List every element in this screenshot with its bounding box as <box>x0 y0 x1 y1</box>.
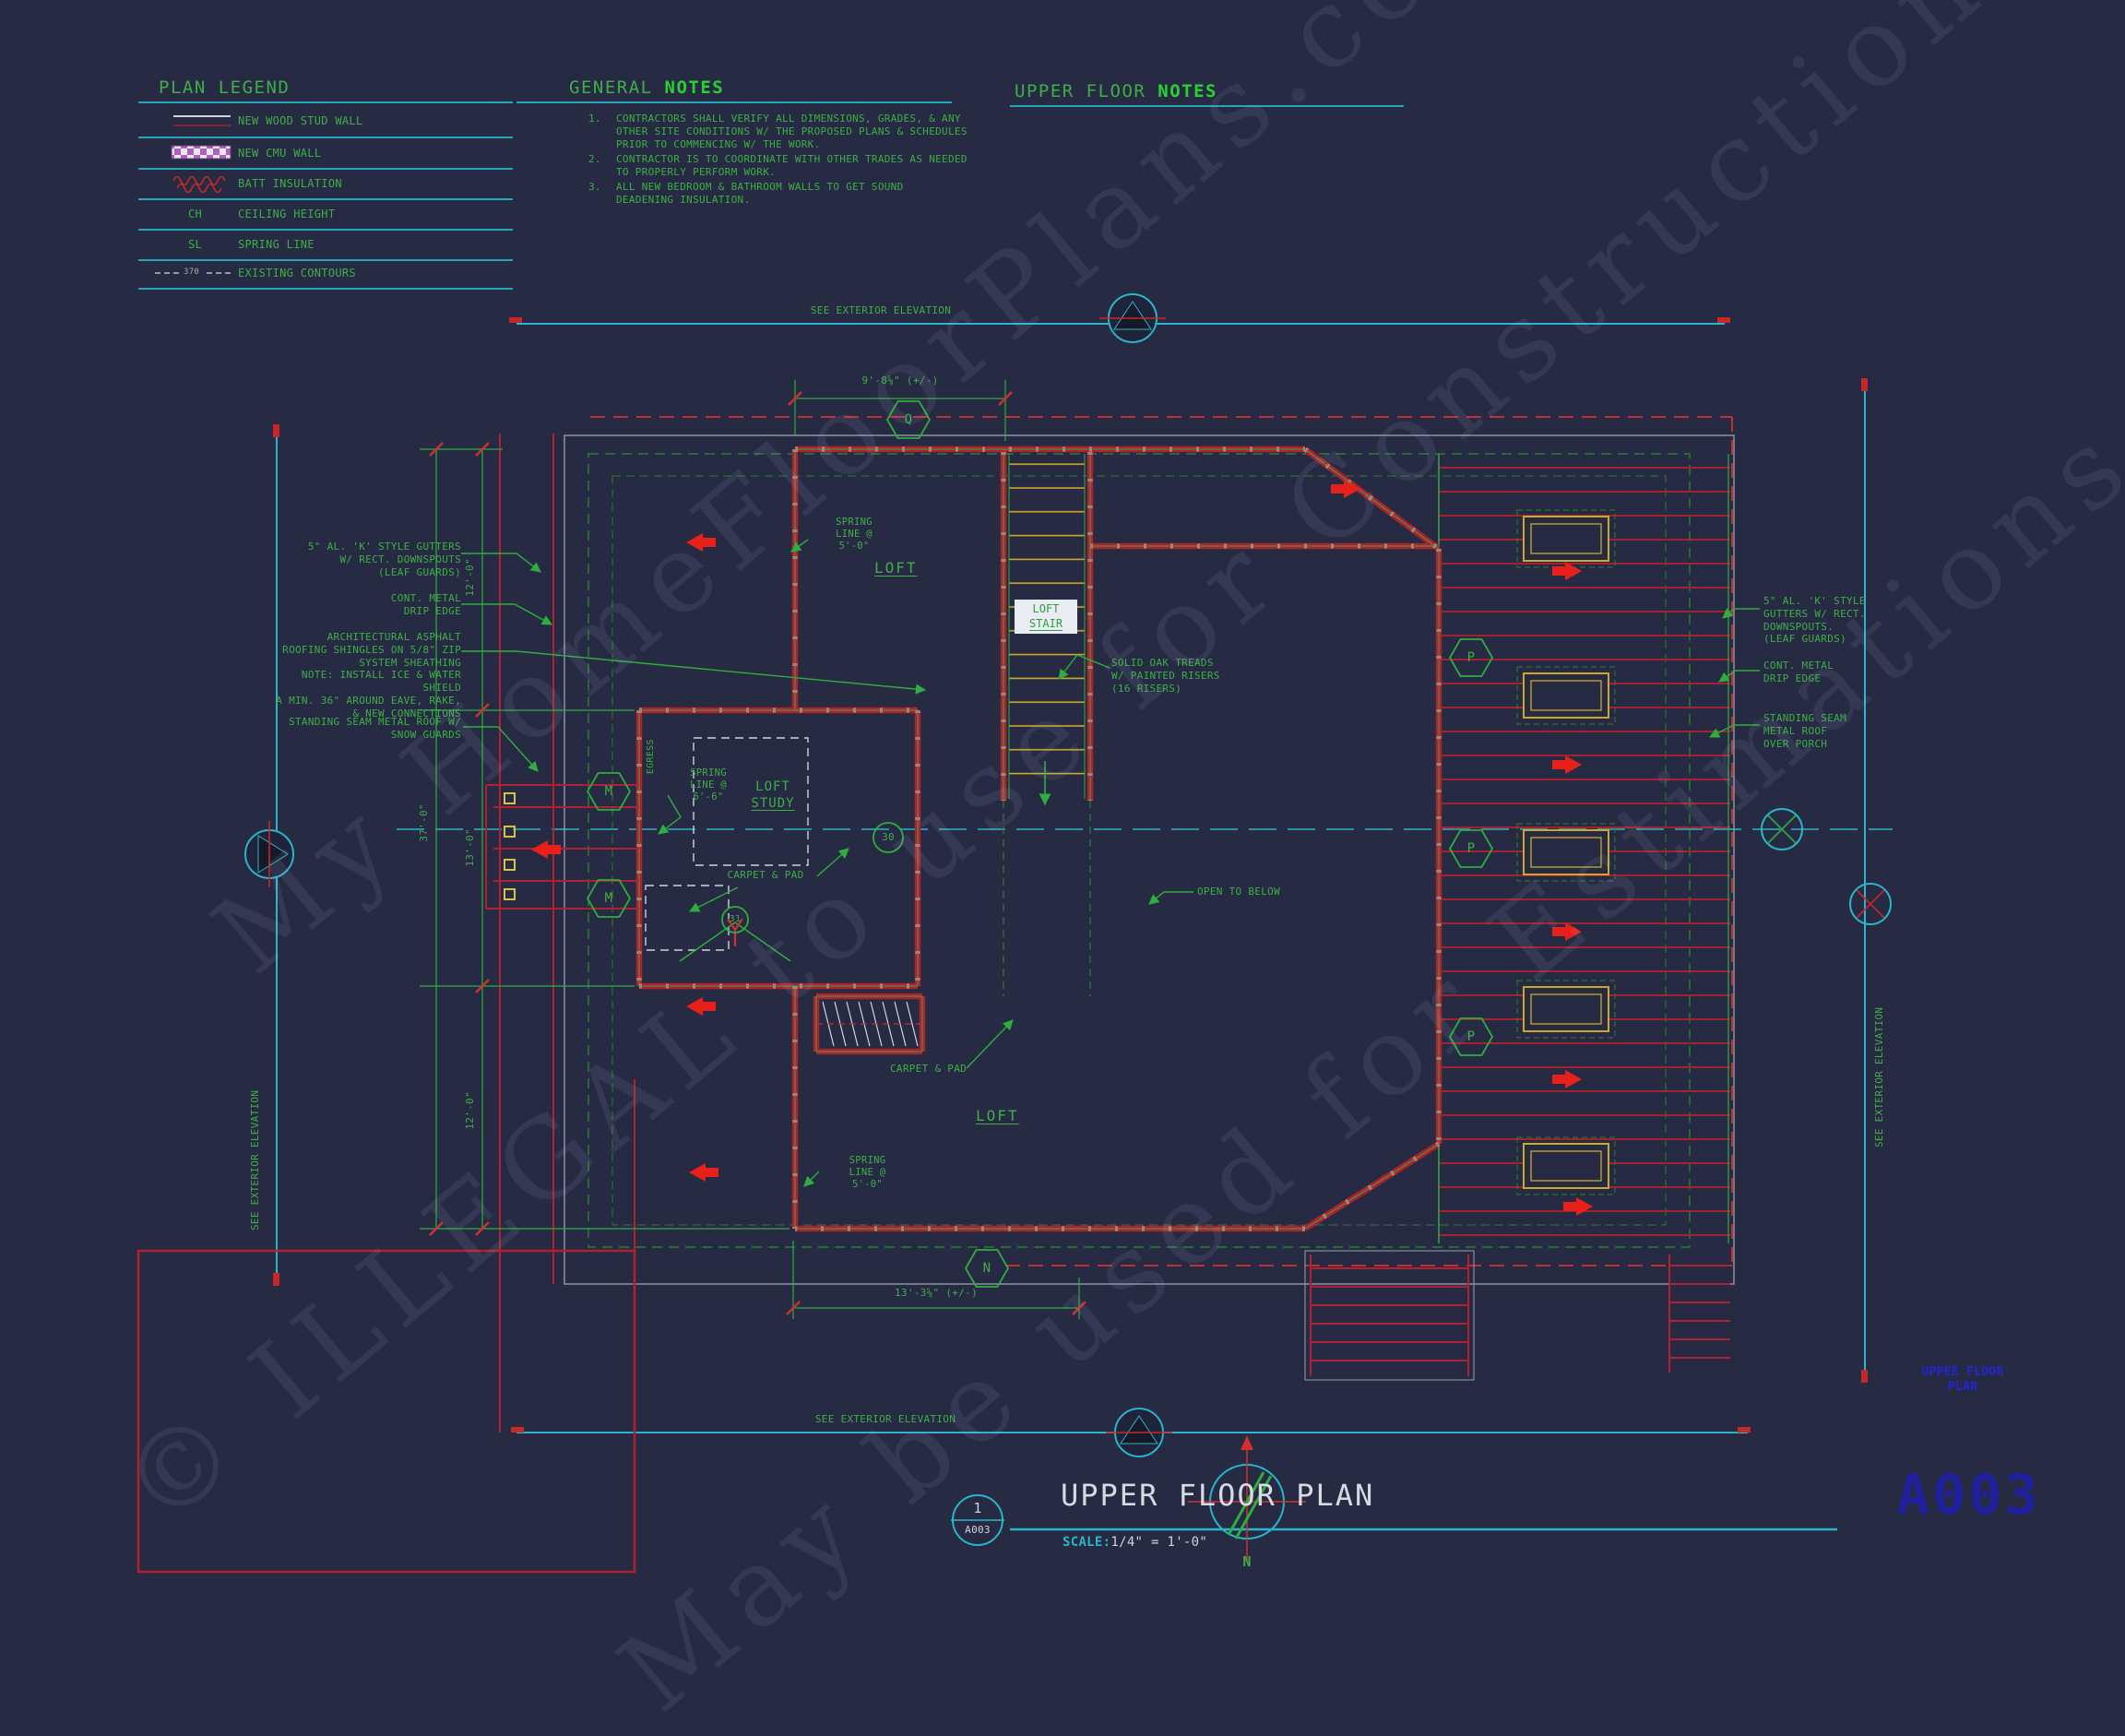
note-number: 1. <box>588 113 601 125</box>
balcony <box>486 785 639 909</box>
note-number: 2. <box>588 153 601 166</box>
room-label-loft-study: LOFTSTUDY <box>738 779 808 812</box>
legend-label-batt: BATT INSULATION <box>238 177 342 191</box>
detail-number: 1 <box>965 1500 991 1517</box>
legend-label-wood: NEW WOOD STUD WALL <box>238 114 362 128</box>
general-notes-title: GENERAL NOTES <box>569 77 724 100</box>
scale-value: 1/4" = 1'-0" <box>1110 1535 1207 1550</box>
legend-title: PLAN LEGEND <box>159 77 290 100</box>
loft-study-line2: STUDY <box>751 796 794 811</box>
callout-solid-oak-treads: SOLID OAK TREADS W/ PAINTED RISERS (16 R… <box>1111 657 1220 695</box>
room-label-loft-upper: LOFT <box>874 559 918 577</box>
elevation-note-top: SEE EXTERIOR ELEVATION <box>766 304 996 317</box>
legend-label-contours: EXISTING CONTOURS <box>238 267 356 280</box>
callout-drip-edge-left: CONT. METAL DRIP EDGE <box>304 592 461 618</box>
scale-note: SCALE:1/4" = 1'-0" <box>1062 1535 1207 1552</box>
marker-n: N <box>972 1261 1002 1278</box>
marker-q: Q <box>894 412 923 429</box>
spring-line-note-study: SPRING LINE @ 6'-6" <box>671 767 745 803</box>
callout-standing-seam-right: STANDING SEAM METAL ROOF OVER PORCH <box>1763 712 1920 750</box>
dimension-left-middle: 13'-0" <box>464 815 477 880</box>
legend-label-sl: SPRING LINE <box>238 238 315 252</box>
marker-p: P <box>1456 1029 1486 1046</box>
note-text: CONTRACTOR IS TO COORDINATE WITH OTHER T… <box>616 153 968 179</box>
marker-p: P <box>1456 841 1486 858</box>
loft-study-line1: LOFT <box>755 779 790 794</box>
callout-drip-edge-right: CONT. METAL DRIP EDGE <box>1763 660 1920 685</box>
dimension-left-overall: 37'-0" <box>418 791 431 855</box>
stair <box>1003 454 1090 996</box>
room-label-loft-lower: LOFT <box>976 1107 1019 1125</box>
dimension-left-upper: 12'-0" <box>464 545 477 610</box>
callout-shingles: ARCHITECTURAL ASPHALT ROOFING SHINGLES O… <box>263 631 461 719</box>
elevation-note-left: SEE EXTERIOR ELEVATION <box>249 1045 262 1276</box>
note-text: CONTRACTORS SHALL VERIFY ALL DIMENSIONS,… <box>616 113 968 150</box>
general-notes-title-suffix: NOTES <box>665 77 725 98</box>
carpet-pad-note-loft: CARPET & PAD <box>890 1063 967 1076</box>
carpet-pad-note-study: CARPET & PAD <box>710 869 821 882</box>
sheet-number: A003 <box>1896 1463 2041 1528</box>
loft-stair-line2: STAIR <box>1029 617 1062 630</box>
legend-label-cmu: NEW CMU WALL <box>238 147 321 161</box>
legend-symbol-contour: 370 <box>184 268 199 278</box>
note-number: 3. <box>588 181 601 194</box>
elevation-note-right: SEE EXTERIOR ELEVATION <box>1873 962 1886 1193</box>
spring-line-note-bottom: SPRING LINE @ 5'-0" <box>824 1155 911 1191</box>
egress-note: EGRESS <box>646 724 658 789</box>
cad-sheet: PLAN LEGEND NEW WOOD STUD WALL NEW CMU W… <box>0 0 2125 1594</box>
drawing-title: UPPER FLOOR PLAN <box>1061 1478 1374 1513</box>
marker-30: 30 <box>873 831 903 844</box>
floor-plan-drawing <box>0 0 2125 1594</box>
marker-p: P <box>1456 650 1486 667</box>
open-to-below-note: OPEN TO BELOW <box>1197 886 1280 898</box>
general-notes-title-prefix: GENERAL <box>569 77 665 98</box>
marker-m: M <box>594 784 623 801</box>
callout-gutters-left: 5" AL. 'K' STYLE GUTTERS W/ RECT. DOWNSP… <box>304 541 461 578</box>
marker-m: M <box>594 891 623 908</box>
porch-steps <box>1305 1251 1730 1380</box>
scale-label: SCALE: <box>1062 1535 1110 1550</box>
callout-gutters-right: 5" AL. 'K' STYLE GUTTERS W/ RECT. DOWNSP… <box>1763 595 1920 646</box>
room-label-loft-stair: LOFTSTAIR <box>1015 600 1077 634</box>
callout-standing-seam-left: STANDING SEAM METAL ROOF W/ SNOW GUARDS <box>277 716 461 742</box>
dimension-top: 9'-8⅝" (+/-) <box>826 375 974 387</box>
dimension-left-lower: 12'-0" <box>464 1078 477 1143</box>
spring-line-note-top: SPRING LINE @ 5'-0" <box>810 517 898 553</box>
elevation-note-bottom: SEE EXTERIOR ELEVATION <box>770 1413 1001 1426</box>
legend-label-ch: CEILING HEIGHT <box>238 208 335 221</box>
legend-symbol-ch: CH <box>188 208 202 221</box>
ufn-title-suffix: NOTES <box>1157 81 1217 101</box>
detail-sheet-ref: A003 <box>957 1524 998 1537</box>
ufn-title-prefix: UPPER FLOOR <box>1015 81 1157 101</box>
dimension-bottom: 13'-3⅝" (+/-) <box>862 1287 1010 1300</box>
sheet-side-title: UPPER FLOOR PLAN <box>1898 1365 2027 1396</box>
upper-floor-notes-title: UPPER FLOOR NOTES <box>1015 81 1217 103</box>
marker-31: 31 <box>720 914 750 926</box>
loft-stair-line1: LOFT <box>1033 602 1060 615</box>
legend-symbol-sl: SL <box>188 238 202 252</box>
note-text: ALL NEW BEDROOM & BATHROOM WALLS TO GET … <box>616 181 904 207</box>
north-label: N <box>1234 1553 1260 1571</box>
